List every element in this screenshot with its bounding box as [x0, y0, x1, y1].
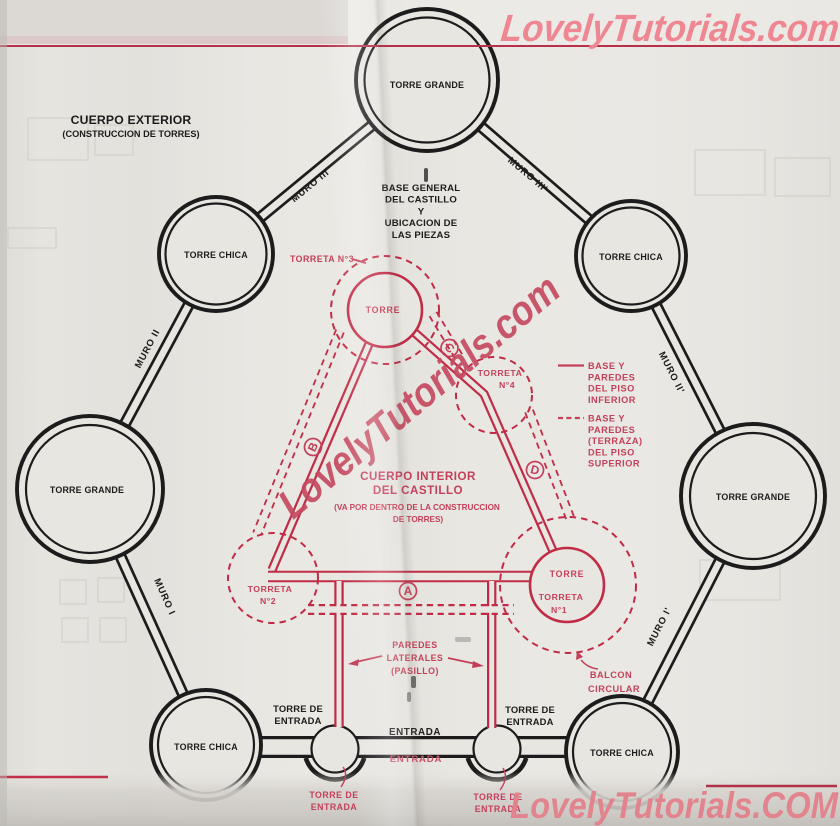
- svg-text:TORRE: TORRE: [550, 569, 585, 579]
- svg-text:TORRETA: TORRETA: [248, 584, 293, 594]
- svg-text:PAREDES: PAREDES: [588, 372, 635, 382]
- svg-text:TORRE CHICA: TORRE CHICA: [174, 742, 238, 752]
- svg-text:TORRE DE: TORRE DE: [505, 704, 555, 715]
- svg-text:DEL PISO: DEL PISO: [588, 447, 635, 457]
- svg-text:CUERPO EXTERIOR: CUERPO EXTERIOR: [71, 113, 192, 127]
- svg-text:CIRCULAR: CIRCULAR: [588, 684, 640, 694]
- svg-text:Y: Y: [418, 206, 425, 217]
- svg-text:LovelyTutorials.COM: LovelyTutorials.COM: [510, 785, 839, 826]
- svg-text:N°4: N°4: [499, 380, 515, 390]
- svg-text:SUPERIOR: SUPERIOR: [588, 459, 640, 469]
- svg-text:N°2: N°2: [260, 596, 276, 606]
- svg-text:TORRE GRANDE: TORRE GRANDE: [50, 485, 124, 495]
- svg-text:(CONSTRUCCION DE TORRES): (CONSTRUCCION DE TORRES): [62, 129, 199, 139]
- svg-text:ENTRADA: ENTRADA: [274, 715, 321, 726]
- svg-text:LovelyTutorials.com: LovelyTutorials.com: [499, 8, 840, 50]
- svg-text:(TERRAZA): (TERRAZA): [588, 436, 643, 446]
- svg-text:TORRE GRANDE: TORRE GRANDE: [716, 492, 790, 502]
- svg-text:BASE Y: BASE Y: [588, 361, 625, 371]
- svg-text:TORRE CHICA: TORRE CHICA: [599, 252, 663, 262]
- svg-text:N°1: N°1: [551, 605, 567, 615]
- svg-text:ENTRADA: ENTRADA: [311, 802, 358, 812]
- svg-text:TORRE CHICA: TORRE CHICA: [184, 250, 248, 260]
- svg-text:TORRE DE: TORRE DE: [273, 703, 323, 714]
- svg-text:PAREDES: PAREDES: [588, 425, 635, 435]
- svg-text:BASE Y: BASE Y: [588, 414, 625, 424]
- svg-text:DEL PISO: DEL PISO: [588, 384, 635, 394]
- svg-text:INFERIOR: INFERIOR: [588, 395, 636, 405]
- svg-text:ENTRADA: ENTRADA: [506, 716, 553, 727]
- svg-text:TORRE DE: TORRE DE: [309, 790, 358, 800]
- svg-text:BALCON: BALCON: [590, 670, 632, 680]
- svg-text:TORRE CHICA: TORRE CHICA: [590, 748, 654, 758]
- svg-text:TORRETA: TORRETA: [539, 592, 584, 602]
